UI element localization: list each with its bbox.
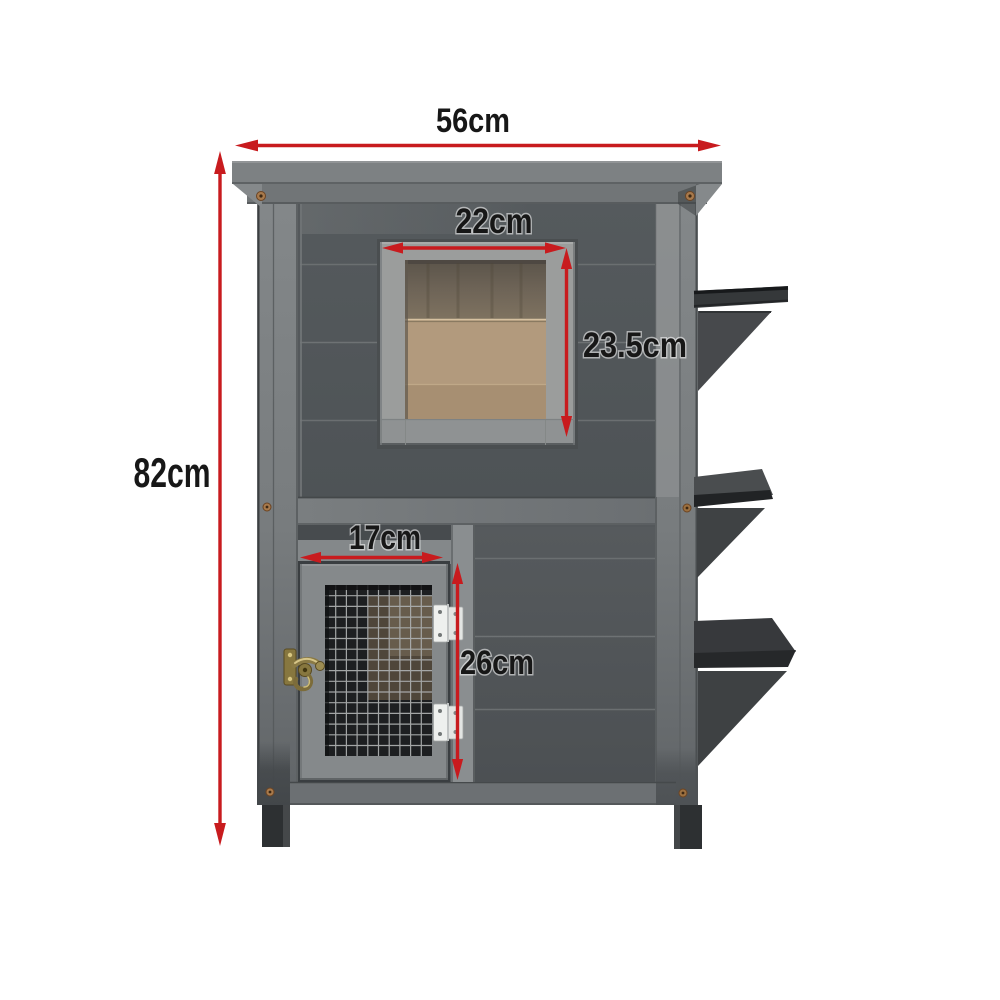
svg-text:56cm: 56cm (436, 102, 510, 140)
svg-text:23.5cm: 23.5cm (583, 326, 687, 365)
svg-text:82cm: 82cm (134, 449, 211, 496)
svg-text:22cm: 22cm (456, 202, 533, 241)
svg-text:26cm: 26cm (460, 644, 534, 682)
svg-text:17cm: 17cm (349, 519, 421, 557)
